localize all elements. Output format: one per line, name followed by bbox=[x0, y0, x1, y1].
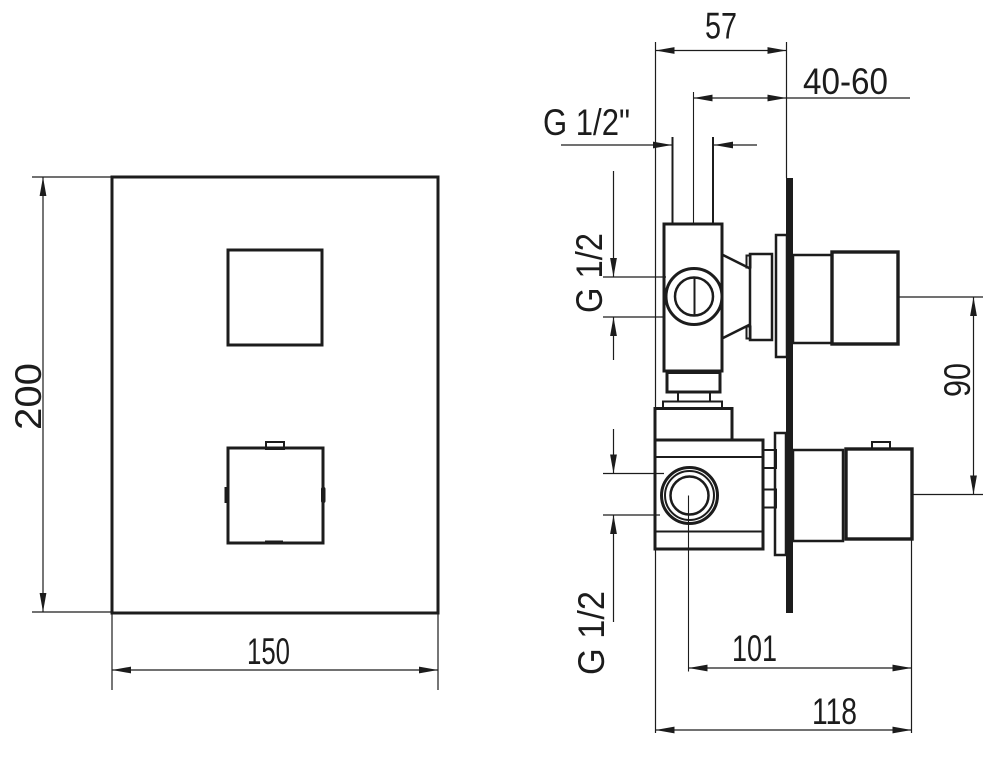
dim-label-lower-port-thread: G 1/2 bbox=[571, 591, 612, 675]
dim-overall-depth: 118 bbox=[656, 691, 912, 732]
inter-valve-connector bbox=[663, 373, 722, 409]
upper-trim-flange bbox=[776, 235, 787, 357]
dim-label-plate-height: 200 bbox=[8, 363, 49, 430]
dim-label-body-depth: 57 bbox=[705, 6, 737, 47]
shower-valve-dimension-drawing: 200 150 57 40-60 G 1/2" bbox=[0, 0, 1000, 761]
upper-valve-body bbox=[664, 224, 787, 371]
knob-bottom-index-tab bbox=[265, 541, 283, 545]
dim-top-inlet-thread: G 1/2" bbox=[543, 102, 757, 145]
dim-label-port-center-distance: 90 bbox=[937, 363, 978, 397]
upper-handle-base bbox=[793, 255, 832, 343]
knob-right-index-tab bbox=[321, 487, 326, 503]
dim-label-handle-to-center: 101 bbox=[732, 628, 777, 669]
upper-cartridge-stem bbox=[750, 254, 772, 340]
lower-valve-body bbox=[655, 409, 786, 556]
side-view: 57 40-60 G 1/2" bbox=[543, 6, 983, 734]
technical-drawing-page: 200 150 57 40-60 G 1/2" bbox=[0, 0, 1000, 761]
dim-wall-range: 40-60 bbox=[694, 61, 911, 102]
front-view: 200 150 bbox=[8, 177, 438, 690]
top-inlet-pipe bbox=[673, 92, 714, 225]
dim-lower-port-thread: G 1/2 bbox=[571, 429, 664, 675]
upper-handle-knob bbox=[832, 252, 898, 344]
knob-left-index-tab bbox=[225, 487, 230, 503]
lower-knob-outline bbox=[228, 448, 323, 543]
cover-plate-outline bbox=[112, 177, 438, 613]
upper-handle-side bbox=[793, 252, 898, 344]
lower-port-mid-circle bbox=[665, 471, 714, 520]
lower-handle-side bbox=[793, 442, 912, 541]
dim-upper-port-thread: G 1/2 bbox=[569, 171, 666, 360]
lower-square-knob-front bbox=[225, 442, 326, 545]
dim-label-plate-width: 150 bbox=[247, 631, 290, 672]
dim-label-upper-port-thread: G 1/2 bbox=[569, 233, 610, 313]
dim-label-top-inlet-thread: G 1/2" bbox=[543, 102, 630, 143]
lower-handle-base bbox=[793, 450, 843, 541]
dim-plate-height: 200 bbox=[8, 177, 112, 612]
dim-handle-to-center: 101 bbox=[689, 628, 912, 669]
upper-square-knob-front bbox=[228, 250, 322, 345]
dim-label-wall-range: 40-60 bbox=[803, 61, 888, 102]
dim-body-depth: 57 bbox=[656, 6, 787, 51]
lower-port-inner-circle bbox=[671, 477, 709, 515]
lower-handle-knob bbox=[846, 449, 912, 539]
dim-plate-width: 150 bbox=[112, 614, 438, 690]
dim-label-overall-depth: 118 bbox=[812, 691, 857, 732]
